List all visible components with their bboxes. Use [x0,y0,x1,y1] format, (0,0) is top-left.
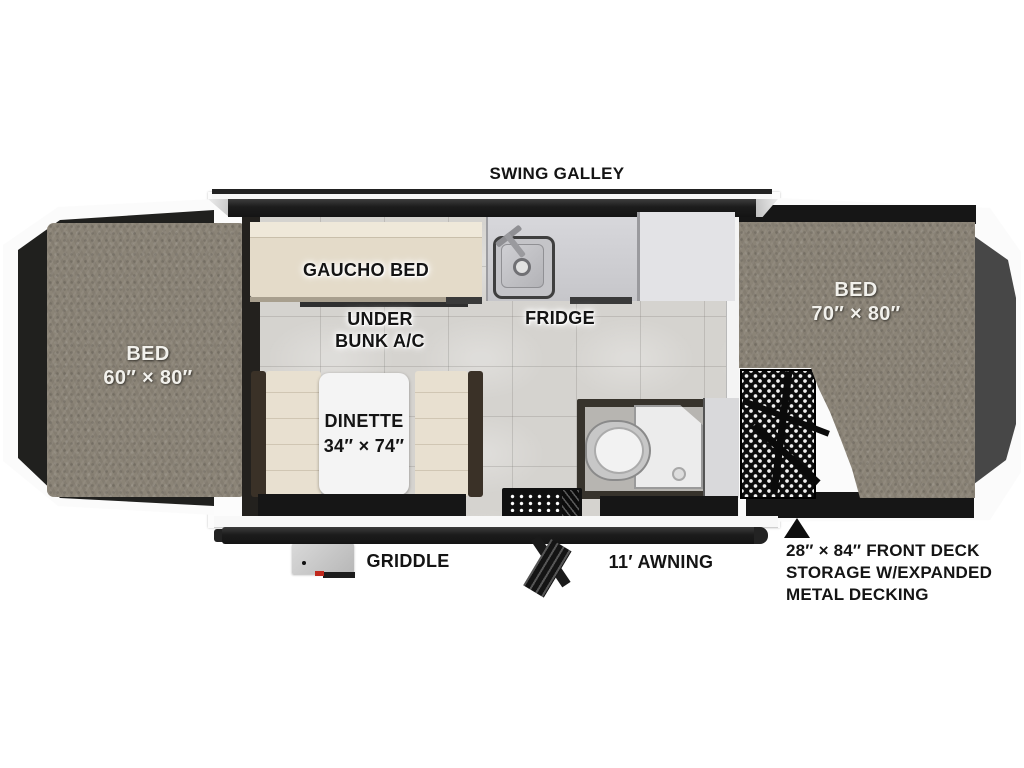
swing-galley-label: SWING GALLEY [490,164,625,184]
bed-left-label: BED [126,343,169,366]
shower-drain-icon [672,467,686,481]
toilet-lid [594,427,644,474]
dinette-bench-left-arm [251,371,266,497]
floorplan-canvas: BED 60″ × 80″ BED 70″ × 80″ GAUCHO BED F… [0,0,1024,768]
front-deck-label-line2: STORAGE W/EXPANDED [786,562,992,584]
dinette-bench-left [266,371,321,497]
front-deck-label-line3: METAL DECKING [786,584,992,606]
gaucho-bed-label: GAUCHO BED [303,260,429,281]
dinette-size-label: 34″ × 74″ [324,436,405,457]
griddle-knob-dot [302,561,306,565]
griddle-label: GRIDDLE [366,551,449,572]
dinette-table [319,373,409,495]
bed-right-label: BED [834,279,877,302]
cabinet-base-vent-1 [446,297,482,304]
cabinet-base-vent-2 [570,297,632,304]
bed-left-size: 60″ × 80″ [103,367,192,390]
floor-mat-left [258,494,466,518]
under-bunk-ac-label-line1: UNDER [347,309,413,330]
dinette-bench-right-arm [468,371,483,497]
dinette-bench-right [415,371,468,497]
front-deck-label: 28″ × 84″ FRONT DECK STORAGE W/EXPANDED … [786,540,992,606]
floor-mat-right [600,496,738,518]
front-deck-arrow [784,518,810,538]
front-deck-label-line1: 28″ × 84″ FRONT DECK [786,540,992,562]
wardrobe-cabinet [703,398,739,498]
griddle-foot [323,572,355,578]
griddle-unit [292,544,354,574]
griddle-red-latch [315,571,324,576]
gaucho-bed-base-strip [300,302,468,307]
faucet-knob-icon [513,258,531,276]
awning-rail [222,527,762,544]
entry-step-dots [508,493,564,512]
under-bunk-ac-label-line2: BUNK A/C [335,331,425,352]
entry-step-tread [562,490,579,516]
bed-right-size: 70″ × 80″ [811,303,900,326]
awning-rail-cap-right [754,527,768,544]
gaucho-bed-backrest [250,222,482,238]
fridge-label: FRIDGE [525,308,595,329]
right-popout-liner-top [738,205,976,224]
fridge-cabinet [637,212,735,301]
dinette-label: DINETTE [324,411,403,432]
awning-label: 11′ AWNING [609,552,714,573]
fold-step-leg-right [523,539,571,598]
